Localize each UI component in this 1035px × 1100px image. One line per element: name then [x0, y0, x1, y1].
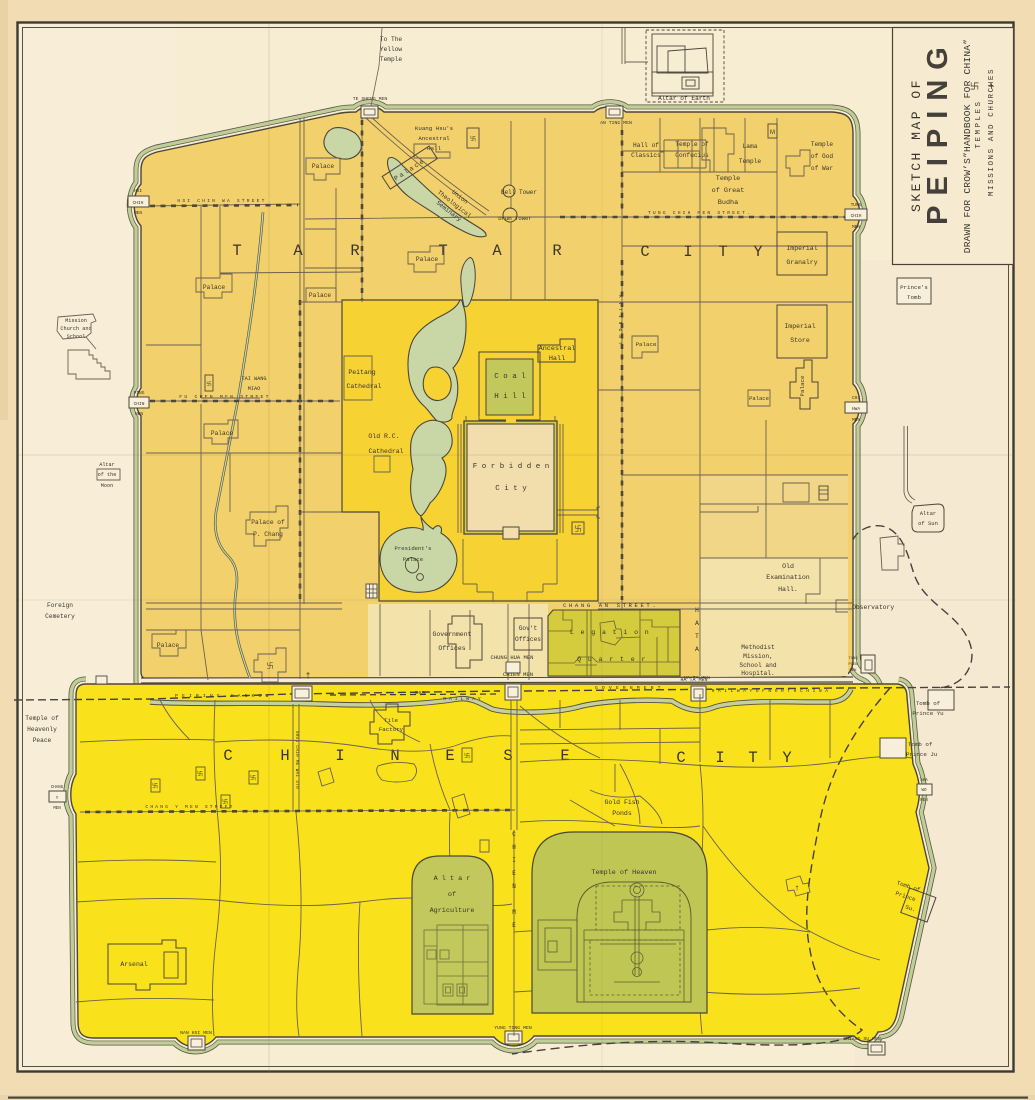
svg-text:Store: Store	[790, 337, 810, 344]
svg-text:Lama: Lama	[743, 143, 758, 150]
svg-text:Factory: Factory	[379, 726, 404, 733]
svg-text:Cemetery: Cemetery	[45, 613, 75, 620]
svg-text:C: C	[512, 831, 516, 838]
svg-text:SHUN CHIH ME WAI STR: SHUN CHIH ME WAI STR	[294, 731, 298, 789]
svg-text:卐: 卐	[970, 81, 980, 90]
svg-text:F o r b i d d e n: F o r b i d d e n	[473, 463, 550, 471]
svg-text:Temple: Temple	[716, 175, 740, 183]
svg-text:T: T	[695, 633, 699, 640]
svg-text:Hall of: Hall of	[633, 142, 659, 149]
svg-text:MEN: MEN	[134, 210, 142, 216]
svg-text:T: T	[718, 243, 727, 261]
svg-text:Palace: Palace	[403, 556, 423, 563]
svg-text:T: T	[748, 749, 757, 767]
svg-text:Tomb of: Tomb of	[908, 741, 933, 748]
svg-text:E: E	[512, 870, 516, 877]
svg-text:of the: of the	[98, 472, 117, 478]
svg-text:Palace: Palace	[636, 341, 657, 348]
svg-text:H: H	[280, 747, 289, 765]
svg-text:MEN: MEN	[920, 799, 928, 803]
svg-text:MIAO: MIAO	[248, 386, 260, 392]
svg-text:Moon: Moon	[101, 483, 113, 489]
svg-text:C: C	[223, 747, 232, 765]
svg-text:Foreign: Foreign	[47, 602, 73, 609]
svg-text:Mission,: Mission,	[743, 653, 773, 660]
svg-text:†: †	[306, 672, 311, 681]
svg-text:Hall.: Hall.	[778, 586, 798, 593]
svg-text:M: M	[770, 130, 775, 136]
svg-text:Prince Yu: Prince Yu	[912, 710, 943, 717]
svg-text:Y: Y	[753, 243, 763, 261]
svg-text:Old: Old	[782, 563, 794, 570]
svg-text:Heavenly: Heavenly	[27, 726, 57, 733]
svg-text:HA TA MEN: HA TA MEN	[684, 675, 710, 681]
svg-text:Church and: Church and	[60, 326, 91, 332]
svg-text:E: E	[445, 747, 454, 765]
svg-text:SHA: SHA	[920, 779, 928, 783]
svg-text:Palace: Palace	[309, 292, 332, 299]
svg-text:CHANG AN STREET.: CHANG AN STREET.	[563, 602, 658, 609]
svg-text:Ancestral: Ancestral	[539, 345, 576, 353]
svg-text:Palace: Palace	[416, 256, 439, 263]
svg-text:Hall: Hall	[549, 355, 565, 363]
svg-text:Y: Y	[782, 749, 792, 767]
svg-text:卐: 卐	[152, 782, 158, 790]
svg-text:E: E	[512, 922, 516, 929]
svg-text:MEN: MEN	[852, 224, 860, 230]
svg-text:R: R	[350, 242, 359, 260]
svg-text:Ponds: Ponds	[612, 810, 632, 817]
svg-text:Cathedral: Cathedral	[368, 448, 403, 455]
svg-text:C i t y: C i t y	[495, 485, 527, 493]
svg-text:PEIPING: PEIPING	[922, 37, 954, 225]
svg-text:Ancestral: Ancestral	[418, 135, 450, 142]
svg-text:WO: WO	[921, 789, 927, 793]
svg-text:of: of	[448, 891, 456, 899]
svg-text:Tomb of: Tomb of	[916, 700, 941, 707]
svg-text:of Sun: of Sun	[918, 520, 938, 527]
svg-text:I: I	[683, 243, 692, 261]
svg-text:Palace: Palace	[749, 395, 769, 402]
svg-text:Methodist: Methodist	[741, 644, 775, 651]
svg-text:Kuang Hsu's: Kuang Hsu's	[415, 125, 453, 132]
svg-text:Peace: Peace	[33, 737, 52, 744]
svg-text:Altar of Earth: Altar of Earth	[658, 95, 710, 102]
svg-text:R A I L W A Y: R A I L W A Y	[443, 696, 481, 702]
svg-text:H i l l: H i l l	[494, 393, 526, 401]
svg-text:+: +	[987, 83, 999, 90]
svg-text:HSI CHIN WA STREET: HSI CHIN WA STREET	[177, 198, 266, 204]
svg-text:TUNG: TUNG	[851, 202, 862, 208]
svg-text:†: †	[795, 885, 799, 892]
svg-text:TUNG: TUNG	[848, 657, 858, 661]
svg-text:Altar: Altar	[99, 462, 115, 468]
svg-text:Prince's: Prince's	[900, 284, 928, 291]
svg-text:Offices: Offices	[515, 636, 541, 643]
svg-text:Temple: Temple	[739, 158, 762, 165]
svg-text:of God: of God	[811, 153, 834, 160]
svg-text:Old R.C.: Old R.C.	[368, 433, 399, 440]
svg-text:Palace: Palace	[312, 163, 335, 170]
svg-text:Observatory: Observatory	[852, 604, 894, 611]
svg-text:卐: 卐	[575, 525, 582, 533]
svg-text:HWA: HWA	[852, 406, 860, 412]
svg-text:Gov't: Gov't	[519, 625, 538, 632]
svg-text:A: A	[492, 242, 502, 260]
svg-text:卐: 卐	[222, 798, 228, 806]
svg-text:G O V E R N M E N T: G O V E R N M E N T	[595, 685, 661, 691]
svg-text:MEN: MEN	[852, 417, 860, 423]
svg-text:SHUN: SHUN	[414, 690, 425, 696]
svg-text:PING: PING	[134, 390, 145, 396]
svg-text:CHIEN MEN: CHIEN MEN	[503, 671, 533, 678]
svg-text:Imperial: Imperial	[786, 245, 817, 252]
svg-text:PIEN: PIEN	[848, 663, 857, 667]
svg-text:T: T	[232, 242, 241, 260]
svg-text:卐: 卐	[206, 380, 212, 388]
svg-text:I: I	[715, 749, 724, 767]
svg-text:CHIH: CHIH	[133, 200, 144, 206]
svg-text:YUNG TING MEN: YUNG TING MEN	[494, 1025, 532, 1031]
svg-text:of Great: of Great	[712, 187, 745, 195]
svg-text:Granalry: Granalry	[786, 259, 817, 266]
svg-text:DRAWN FOR CROW’S”HANDBOOK FOR: DRAWN FOR CROW’S”HANDBOOK FOR CHINA”	[962, 39, 973, 253]
svg-text:A: A	[293, 242, 303, 260]
svg-text:MEN: MEN	[53, 807, 61, 811]
svg-text:of War: of War	[811, 165, 834, 172]
svg-text:CHIANG SU MEN: CHIANG SU MEN	[843, 1036, 881, 1042]
svg-text:Palace: Palace	[203, 284, 226, 291]
svg-text:President's: President's	[395, 545, 432, 552]
svg-text:Drum Tower: Drum Tower	[498, 215, 532, 222]
svg-text:CHIH: CHIH	[851, 213, 862, 219]
svg-text:R: R	[552, 242, 561, 260]
svg-text:Temple: Temple	[380, 56, 403, 63]
svg-text:Tomb: Tomb	[907, 294, 921, 301]
svg-text:Peitang: Peitang	[348, 369, 375, 376]
svg-text:TE SHENG MEN: TE SHENG MEN	[353, 96, 388, 102]
svg-text:Offices: Offices	[438, 645, 465, 652]
svg-text:CHIN: CHIN	[134, 401, 145, 407]
svg-text:Q u a r t e r: Q u a r t e r	[577, 656, 647, 663]
svg-text:Temple of: Temple of	[25, 715, 59, 722]
svg-text:Arsenal: Arsenal	[120, 961, 147, 968]
svg-text:C o a l: C o a l	[494, 373, 526, 381]
svg-text:卐: 卐	[470, 135, 476, 143]
svg-text:Altar: Altar	[920, 510, 937, 517]
svg-text:CHUNG HUA MEN: CHUNG HUA MEN	[491, 654, 534, 661]
svg-text:CHI: CHI	[852, 395, 860, 401]
svg-text:E: E	[560, 747, 569, 765]
svg-text:卐: 卐	[464, 752, 470, 760]
svg-text:T: T	[438, 242, 447, 260]
svg-text:L e g a t i o n: L e g a t i o n	[570, 629, 650, 636]
svg-text:MEN: MEN	[135, 411, 143, 417]
svg-text:NAN HSI MEN: NAN HSI MEN	[180, 1030, 212, 1036]
svg-text:Agriculture: Agriculture	[430, 907, 475, 915]
svg-text:C: C	[640, 243, 649, 261]
svg-text:CHANG: CHANG	[51, 786, 64, 790]
svg-text:I: I	[335, 747, 344, 765]
svg-text:Hospital.: Hospital.	[741, 670, 774, 677]
svg-text:Examination: Examination	[766, 574, 810, 581]
svg-text:HSI: HSI	[134, 188, 142, 194]
svg-text:卐: 卐	[250, 774, 256, 782]
svg-text:Classics: Classics	[631, 152, 661, 159]
svg-text:Gold Fish: Gold Fish	[604, 799, 639, 806]
svg-text:M: M	[512, 909, 516, 916]
svg-text:Cathedral: Cathedral	[346, 383, 381, 390]
svg-text:P E I R I N G - H A N K O W: P E I R I N G - H A N K O W	[175, 693, 269, 699]
svg-text:AN TING MEN: AN TING MEN	[600, 120, 632, 126]
svg-text:TEMPLES: TEMPLES	[975, 99, 983, 148]
svg-text:FU CHEN MEN STREET: FU CHEN MEN STREET	[179, 394, 270, 400]
svg-text:Prince Ju: Prince Ju	[906, 751, 937, 758]
svg-text:I: I	[512, 857, 516, 864]
svg-text:A: A	[695, 620, 699, 627]
svg-text:Tile: Tile	[384, 717, 398, 724]
svg-text:Palace: Palace	[799, 375, 806, 396]
svg-text:To The: To The	[380, 36, 403, 43]
svg-text:Temple: Temple	[811, 141, 834, 148]
svg-text:H: H	[695, 607, 699, 614]
svg-text:TAI WANG: TAI WANG	[242, 376, 267, 382]
svg-text:Bell Tower: Bell Tower	[501, 189, 537, 196]
svg-text:Palace: Palace	[157, 642, 180, 649]
svg-text:School and: School and	[739, 662, 776, 669]
svg-text:Mission: Mission	[65, 318, 87, 324]
svg-text:Imperial: Imperial	[784, 323, 815, 330]
svg-text:A: A	[695, 646, 699, 653]
svg-text:MEN: MEN	[850, 669, 857, 673]
svg-text:H: H	[512, 844, 516, 851]
svg-text:A l t a r: A l t a r	[434, 875, 471, 883]
svg-text:N: N	[512, 883, 516, 890]
svg-text:Yellow: Yellow	[380, 46, 403, 53]
svg-text:Palace: Palace	[211, 430, 234, 437]
svg-text:卐: 卐	[197, 770, 203, 778]
svg-text:Budha: Budha	[718, 199, 738, 207]
svg-text:R A I L W A Y O F N O R T H: R A I L W A Y O F N O R T H C H I N A	[712, 688, 829, 694]
svg-text:Government: Government	[432, 631, 471, 638]
